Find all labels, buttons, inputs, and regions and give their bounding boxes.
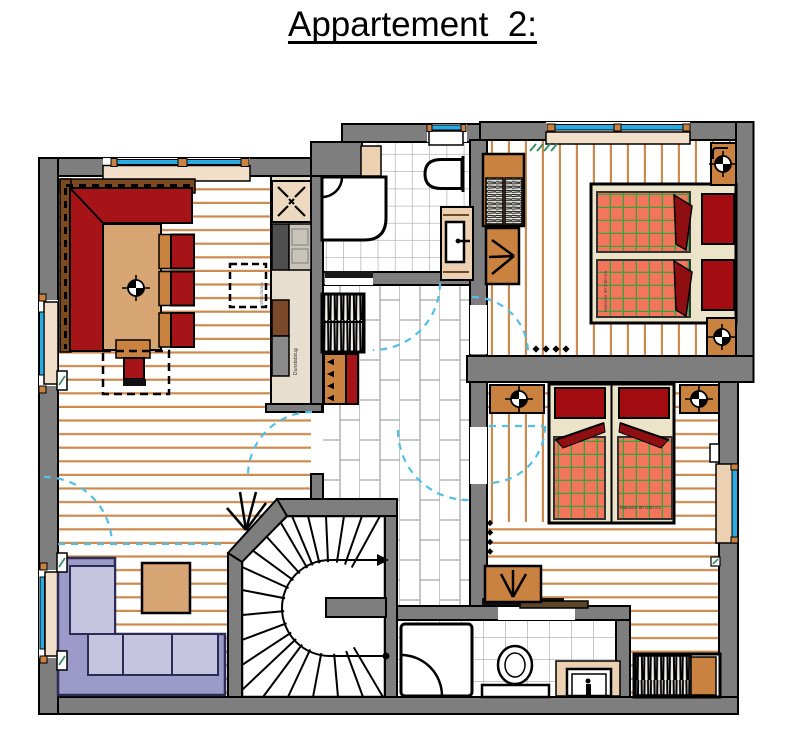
svg-text:Matratze 90 /200 cm: Matratze 90 /200 cm xyxy=(620,505,661,510)
svg-text:Dunstabzug: Dunstabzug xyxy=(293,348,299,375)
svg-text:Kühlschrank: Kühlschrank xyxy=(259,281,264,307)
svg-text:Matratze 90 /200 cm: Matratze 90 /200 cm xyxy=(603,271,608,312)
